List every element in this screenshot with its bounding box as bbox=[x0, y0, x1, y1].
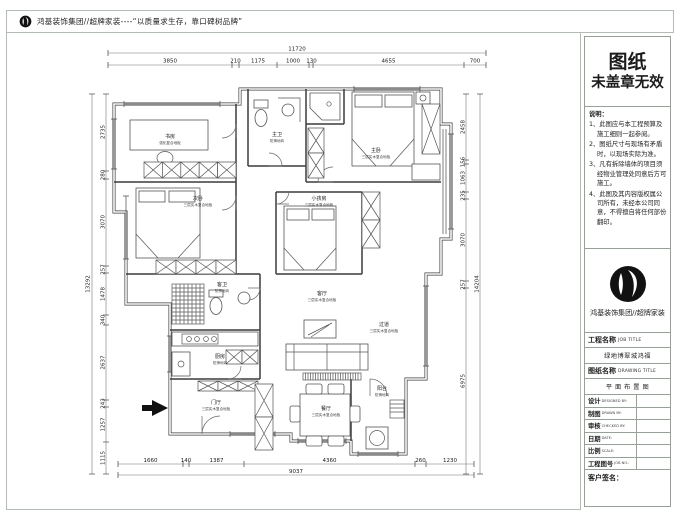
job-label: 工程名称 bbox=[588, 335, 616, 345]
svg-text:三层实木复合地板: 三层实木复合地板 bbox=[312, 412, 341, 417]
dim-left-6: 2637 bbox=[101, 355, 107, 369]
svg-text:三层实木复合地板: 三层实木复合地板 bbox=[362, 154, 391, 159]
stamp-notice: 图纸 未盖章无效 bbox=[585, 37, 670, 107]
stamp-line1: 图纸 bbox=[608, 52, 646, 74]
svg-text:防滑地砖: 防滑地砖 bbox=[270, 138, 285, 143]
dim-right-1: 156 bbox=[461, 156, 467, 167]
notes-title: 说明： bbox=[589, 110, 667, 119]
entry-arrow-icon bbox=[142, 400, 168, 416]
dim-left-5: 340 bbox=[101, 314, 107, 325]
dim-left-7: 243 bbox=[101, 398, 107, 409]
drawing-title-section: 图纸名称 DRAWING TITLE 平 面 布 置 图 bbox=[585, 364, 670, 395]
dim-right-4: 3070 bbox=[461, 233, 467, 247]
room-label-balcony: 阳台 bbox=[377, 385, 387, 392]
dim-top-2: 1175 bbox=[251, 59, 265, 65]
row-checked-by: 审核CHECKED BY: bbox=[585, 420, 670, 433]
room-label-kids-room: 小孩房 bbox=[311, 195, 326, 202]
dim-left-8: 1257 bbox=[101, 417, 107, 431]
dim-bottom-0: 1660 bbox=[144, 458, 158, 464]
dim-top-overall: 11720 bbox=[288, 47, 306, 53]
kids-bed bbox=[284, 206, 336, 270]
job-title-section: 工程名称 JOB TITLE 绿地博翠城鸿福 bbox=[585, 333, 670, 364]
dim-right-5: 257 bbox=[461, 279, 467, 290]
shower-enclosure bbox=[310, 93, 340, 120]
note-item: 2、图纸尺寸与现场有矛盾时，以现场实际为准。 bbox=[589, 140, 667, 159]
svg-text:防滑地砖: 防滑地砖 bbox=[213, 360, 228, 365]
job-value: 绿地博翠城鸿福 bbox=[585, 347, 670, 363]
room-label-dining: 餐厅 bbox=[321, 405, 331, 412]
dim-top-1: 210 bbox=[230, 59, 241, 65]
room-label-living-room: 客厅 bbox=[317, 290, 327, 297]
guest-bath-fixtures bbox=[172, 284, 250, 324]
dim-left-3: 257 bbox=[101, 264, 107, 275]
room-label-master-bedroom: 主卧 bbox=[371, 147, 381, 154]
brand-section: 鸿基装饰集团//超牌家装 bbox=[585, 249, 670, 333]
dim-left-2: 3070 bbox=[101, 215, 107, 229]
dim-bottom-1: 140 bbox=[181, 458, 192, 464]
dim-bottom-2: 1387 bbox=[210, 458, 224, 464]
fridge bbox=[172, 352, 190, 376]
tv-cabinet bbox=[303, 373, 361, 380]
second-bedroom-bed bbox=[136, 188, 200, 258]
dim-top-0: 3850 bbox=[163, 59, 177, 65]
dim-bottom-4: 260 bbox=[415, 458, 426, 464]
company-logo-icon bbox=[608, 264, 648, 304]
stamp-line2: 未盖章无效 bbox=[591, 74, 664, 91]
floor-plan: 11720 3850 210 1175 1000 130 4655 700 13… bbox=[70, 34, 500, 486]
note-item: 4、此图及其内容版权属公司所有，未经本公司同意，不得擅自将任何部份翻印。 bbox=[589, 190, 667, 228]
living-room-furniture bbox=[286, 320, 368, 380]
row-job-no: 工程图号JOB NO.: bbox=[585, 458, 670, 471]
room-label-hallway: 过道 bbox=[379, 321, 389, 328]
master-bath-fixtures bbox=[254, 93, 340, 127]
dim-left-overall: 13292 bbox=[86, 275, 92, 293]
dim-bottom-5: 1230 bbox=[443, 458, 457, 464]
dim-right-overall: 14204 bbox=[475, 275, 481, 293]
svg-text:三层实木复合地板: 三层实木复合地板 bbox=[184, 202, 213, 207]
drawing-label: 图纸名称 bbox=[588, 366, 616, 376]
dim-right-3: 235 bbox=[461, 190, 467, 201]
master-desk bbox=[412, 164, 440, 180]
dim-left-1: 280 bbox=[101, 169, 107, 180]
dim-right-6: 6975 bbox=[461, 374, 467, 388]
room-label-master-bath: 主卫 bbox=[272, 131, 282, 138]
svg-text:防滑地砖: 防滑地砖 bbox=[375, 392, 390, 397]
row-scale: 比例SCALE: bbox=[585, 445, 670, 458]
note-item: 3、凡有拆除墙体的项目须经物业管理处同意后方可施工。 bbox=[589, 160, 667, 188]
dim-top-5: 4655 bbox=[382, 59, 396, 65]
room-label-second-bedroom: 次卧 bbox=[193, 195, 203, 202]
dim-right-0: 2458 bbox=[461, 120, 467, 134]
balcony-fixtures bbox=[366, 400, 404, 449]
drawing-value: 平 面 布 置 图 bbox=[585, 378, 670, 394]
furniture-layer bbox=[130, 92, 440, 450]
dim-bottom-3: 4360 bbox=[323, 458, 337, 464]
dim-left-4: 1478 bbox=[101, 287, 107, 301]
dim-bottom-overall: 9037 bbox=[289, 469, 303, 475]
svg-text:强化复合地板: 强化复合地板 bbox=[159, 140, 181, 145]
row-drawn-by: 制图DRAWN BY: bbox=[585, 408, 670, 421]
dim-top-4: 130 bbox=[306, 59, 317, 65]
dim-left-9: 1115 bbox=[101, 451, 107, 465]
client-signature: 客户签名： bbox=[585, 470, 670, 506]
svg-text:三层实木复合地板: 三层实木复合地板 bbox=[305, 202, 334, 207]
room-label-kitchen: 厨房 bbox=[215, 353, 225, 360]
row-date: 日期DATE: bbox=[585, 433, 670, 446]
room-label-study: 书房 bbox=[165, 133, 175, 140]
dim-top-6: 700 bbox=[470, 59, 481, 65]
dim-top-3: 1000 bbox=[286, 59, 300, 65]
room-label-guest-bath: 客卫 bbox=[217, 281, 227, 288]
company-name: 鸿基装饰集团//超牌家装 bbox=[590, 308, 665, 318]
note-item: 1、此图应与本工程预算及施工细则一起参阅。 bbox=[589, 120, 667, 139]
row-designed-by: 设计DESIGNED BY: bbox=[585, 395, 670, 408]
svg-text:三层实木复合地板: 三层实木复合地板 bbox=[308, 297, 337, 302]
dim-left-0: 2735 bbox=[101, 125, 107, 139]
notes-section: 说明： 1、此图应与本工程预算及施工细则一起参阅。 2、图纸尺寸与现场有矛盾时，… bbox=[585, 107, 670, 249]
room-label-entry: 门厅 bbox=[211, 399, 221, 406]
svg-text:三层实木复合地板: 三层实木复合地板 bbox=[370, 328, 399, 333]
dim-right-2: 1063 bbox=[461, 171, 467, 185]
title-block: 图纸 未盖章无效 说明： 1、此图应与本工程预算及施工细则一起参阅。 2、图纸尺… bbox=[580, 33, 674, 510]
drawing-sheet: 鸿基装饰集团//超牌家装----“以质量求生存，靠口碑树品牌” 11720 38… bbox=[0, 0, 680, 517]
svg-text:防滑地砖: 防滑地砖 bbox=[215, 288, 230, 293]
svg-text:三层实木复合地板: 三层实木复合地板 bbox=[202, 406, 231, 411]
